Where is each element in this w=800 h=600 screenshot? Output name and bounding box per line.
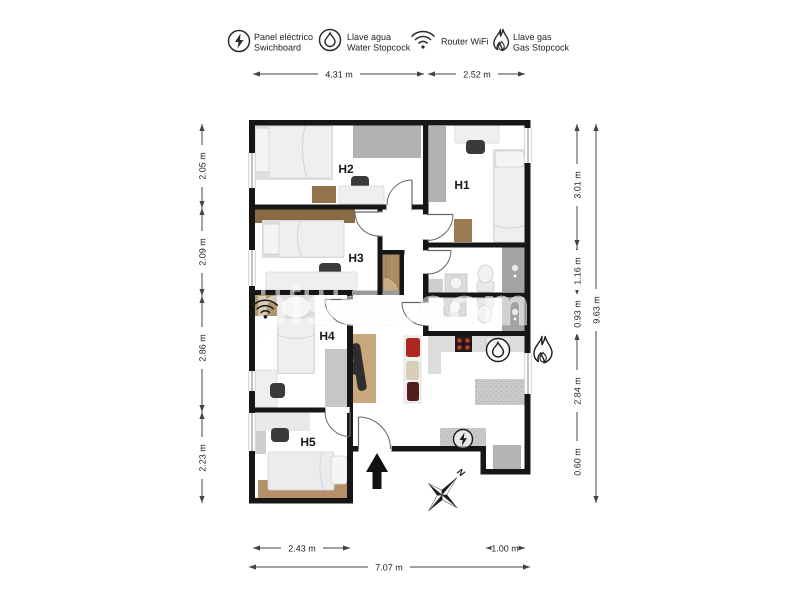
svg-text:H3: H3: [348, 251, 364, 265]
svg-text:2.86 m: 2.86 m: [198, 334, 208, 362]
svg-text:Llave agua: Llave agua: [347, 32, 391, 42]
svg-text:4.31 m: 4.31 m: [325, 70, 353, 80]
svg-text:Gas Stopcock: Gas Stopcock: [513, 43, 570, 53]
svg-text:2.43 m: 2.43 m: [288, 544, 316, 554]
svg-text:Swichboard: Swichboard: [254, 43, 301, 53]
svg-text:Water Stopcock: Water Stopcock: [347, 43, 411, 53]
svg-text:1.00 m: 1.00 m: [491, 544, 519, 554]
svg-text:H1: H1: [454, 178, 470, 192]
svg-text:pisos.com: pisos.com: [255, 277, 531, 337]
svg-text:0.60 m: 0.60 m: [573, 448, 583, 476]
svg-text:Router WiFi: Router WiFi: [441, 37, 489, 47]
svg-text:H5: H5: [300, 435, 316, 449]
svg-text:9.63 m: 9.63 m: [592, 296, 602, 324]
svg-text:2.84 m: 2.84 m: [573, 377, 583, 405]
svg-text:Panel eléctrico: Panel eléctrico: [254, 32, 313, 42]
svg-text:0.93 m: 0.93 m: [573, 300, 583, 328]
svg-text:2.05 m: 2.05 m: [198, 152, 208, 180]
svg-text:2.09 m: 2.09 m: [198, 238, 208, 266]
svg-text:Llave gas: Llave gas: [513, 32, 552, 42]
svg-text:1.16 m: 1.16 m: [573, 257, 583, 285]
svg-text:2.23 m: 2.23 m: [198, 444, 208, 472]
svg-text:2.52 m: 2.52 m: [463, 70, 491, 80]
svg-text:3.01 m: 3.01 m: [573, 171, 583, 199]
svg-text:H2: H2: [338, 162, 354, 176]
svg-text:7.07 m: 7.07 m: [375, 563, 403, 573]
